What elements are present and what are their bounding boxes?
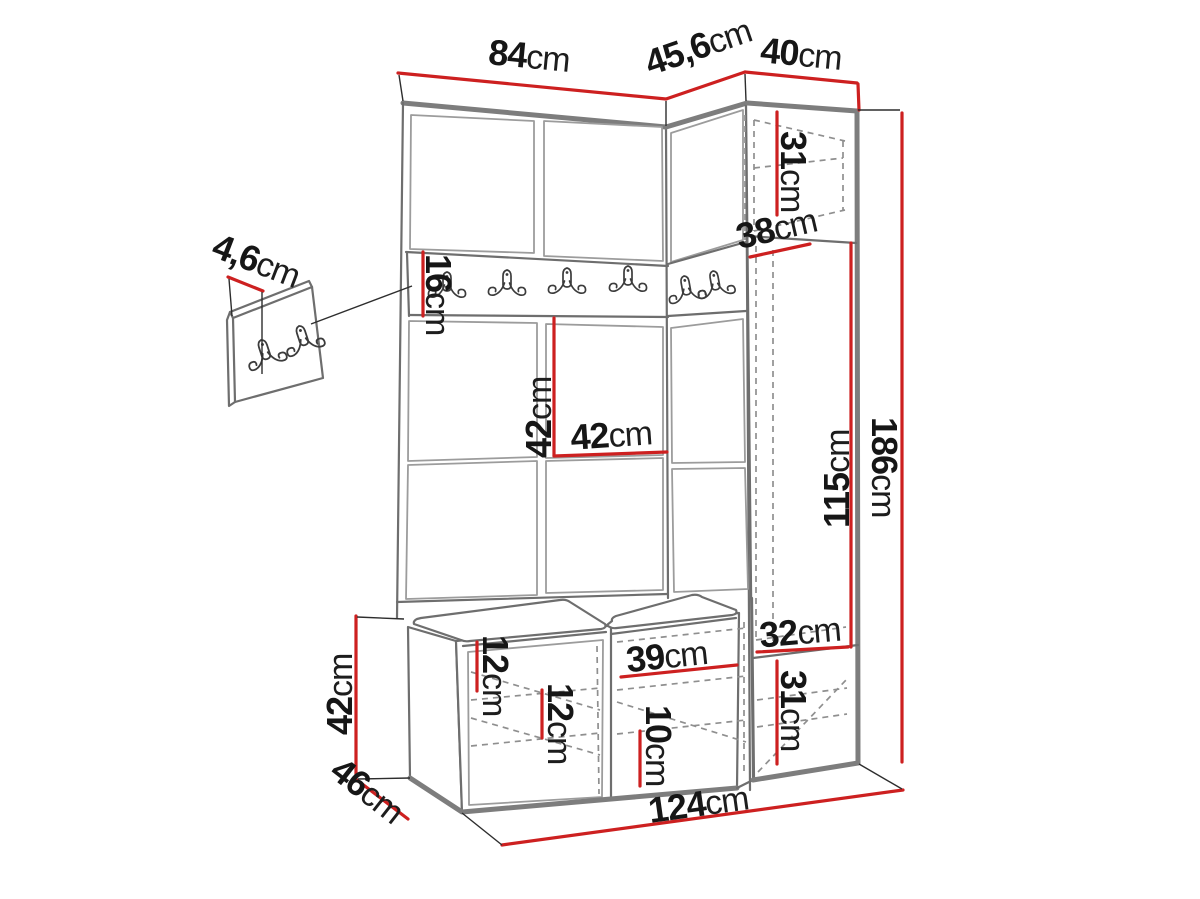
dim-label-31cm-top: 31cm — [773, 131, 814, 212]
upper-door-left — [410, 115, 534, 253]
corner-upper-door — [671, 110, 743, 262]
dim-label-12cm-b: 12cm — [540, 683, 581, 764]
dim-label-12cm-a: 12cm — [475, 635, 516, 716]
main-left-edge — [397, 103, 403, 618]
wall-hook-panel — [227, 281, 412, 406]
dim-label-31cm-bottom: 31cm — [773, 670, 814, 751]
dim-label-32cm: 32cm — [758, 608, 843, 656]
dim-label-84cm: 84cm — [487, 31, 572, 80]
double-hook-icon — [488, 270, 525, 295]
dim-label-39cm: 39cm — [624, 631, 709, 680]
hook-panel-pointer-line — [311, 286, 412, 324]
dim-label-4-6cm: 4,6cm — [207, 225, 306, 296]
dim-label-16cm: 16cm — [418, 254, 459, 335]
wall-panel-r2c1 — [406, 461, 537, 599]
dim-label-46cm: 46cm — [323, 749, 412, 831]
wall-panel-r2c2 — [546, 458, 663, 593]
dim-label-45-6cm: 45,6cm — [640, 9, 757, 83]
dim-label-40cm: 40cm — [759, 29, 844, 78]
dim-label-42cm-vertical: 42cm — [518, 377, 559, 458]
double-hook-icon — [548, 268, 585, 293]
dim-label-42cm-bench: 42cm — [319, 654, 360, 735]
dim-label-10cm: 10cm — [638, 705, 679, 786]
dim-line-84 — [398, 73, 666, 99]
dim-label-42cm-horizontal: 42cm — [569, 411, 653, 458]
corner-wall-panel-top — [671, 319, 745, 463]
dim-label-186cm: 186cm — [864, 417, 905, 517]
double-hook-icon — [695, 268, 736, 299]
double-hook-icon — [609, 266, 646, 291]
corner-wall-panel-bottom — [672, 468, 748, 592]
hook-panel-front — [233, 287, 323, 402]
corner-inner-edge — [666, 127, 668, 598]
diagram-canvas: 84cm 45,6cm 40cm 31cm 38cm 16cm 4,6cm 42… — [0, 0, 1200, 899]
upper-door-right — [544, 121, 663, 261]
dim-line-45-6 — [666, 72, 745, 99]
furniture-dimension-diagram: 84cm 45,6cm 40cm 31cm 38cm 16cm 4,6cm 42… — [0, 0, 1200, 899]
right-outer-edge — [857, 111, 858, 763]
double-hook-icon — [666, 273, 707, 304]
main-wall-unit — [397, 103, 668, 618]
dim-label-115cm: 115cm — [816, 430, 857, 528]
rail-hooks — [428, 266, 735, 304]
